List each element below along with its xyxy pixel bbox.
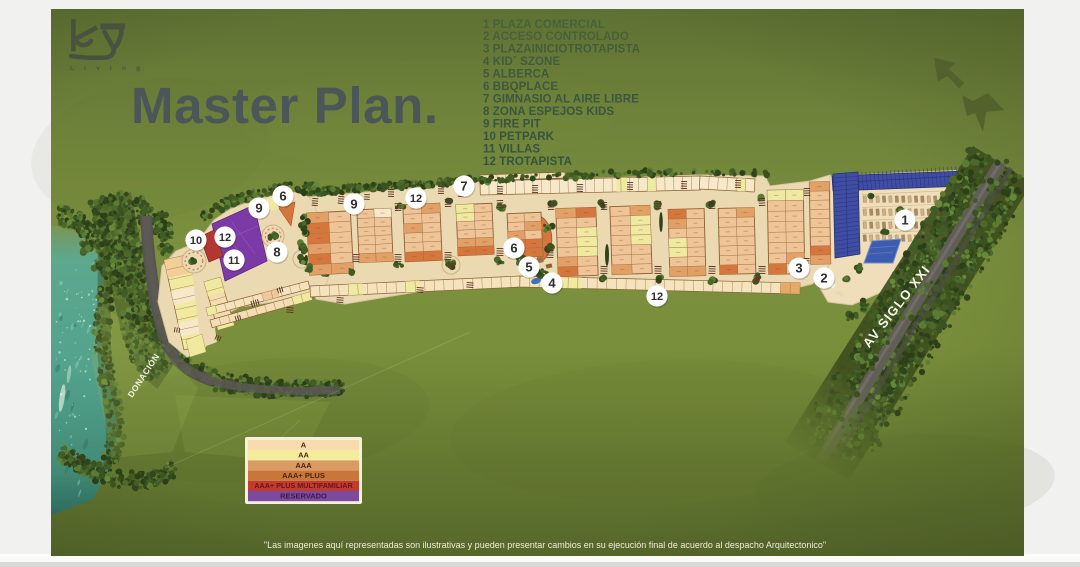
svg-text:AA: AA [298, 451, 309, 460]
svg-text:RESERVADO: RESERVADO [280, 491, 327, 500]
svg-text:3: 3 [795, 261, 802, 276]
svg-text:AAA+ PLUS MULTIFAMILIAR: AAA+ PLUS MULTIFAMILIAR [254, 481, 353, 490]
svg-text:12: 12 [651, 291, 663, 303]
svg-text:4: 4 [548, 276, 556, 291]
svg-text:10: 10 [190, 235, 202, 247]
svg-text:11: 11 [228, 255, 240, 267]
svg-text:12 TROTAPISTA: 12 TROTAPISTA [483, 156, 572, 168]
svg-text:AAA+ PLUS: AAA+ PLUS [282, 471, 325, 480]
svg-text:2: 2 [820, 271, 827, 286]
svg-text:AAA: AAA [295, 461, 312, 470]
svg-text:3 PLAZAINICIOTROTAPISTA: 3 PLAZAINICIOTROTAPISTA [483, 44, 640, 56]
svg-text:12: 12 [219, 232, 231, 244]
svg-text:6: 6 [279, 189, 286, 204]
svg-text:12: 12 [410, 193, 422, 205]
svg-text:9: 9 [255, 201, 262, 216]
svg-text:"Las imagenes aquí representad: "Las imagenes aquí representadas son ilu… [264, 540, 826, 550]
svg-text:6 BBQPLACE: 6 BBQPLACE [483, 81, 558, 93]
svg-text:4 KID´ SZONE: 4 KID´ SZONE [483, 56, 560, 68]
svg-text:11 VILLAS: 11 VILLAS [483, 143, 540, 155]
svg-text:7 GIMNASIO AL AIRE LIBRE: 7 GIMNASIO AL AIRE LIBRE [483, 94, 639, 106]
svg-text:8 ZONA ESPEJOS KIDS: 8 ZONA ESPEJOS KIDS [483, 106, 614, 118]
svg-text:1: 1 [901, 213, 908, 228]
svg-text:9: 9 [350, 197, 357, 212]
svg-text:A: A [301, 440, 307, 449]
svg-text:2 ACCESO CONTROLADO: 2 ACCESO CONTROLADO [483, 31, 629, 43]
svg-text:L i v i n g: L i v i n g [70, 65, 144, 72]
svg-text:5: 5 [525, 260, 532, 275]
svg-text:7: 7 [460, 179, 467, 194]
svg-text:6: 6 [510, 241, 517, 256]
svg-text:Master Plan.: Master Plan. [131, 77, 439, 134]
svg-text:5 ALBERCA: 5 ALBERCA [483, 69, 549, 81]
svg-text:8: 8 [273, 245, 280, 260]
svg-text:10 PETPARK: 10 PETPARK [483, 131, 555, 143]
svg-text:1 PLAZA COMERCIAL: 1 PLAZA COMERCIAL [483, 19, 605, 31]
svg-text:9 FIRE PIT: 9 FIRE PIT [483, 118, 541, 130]
